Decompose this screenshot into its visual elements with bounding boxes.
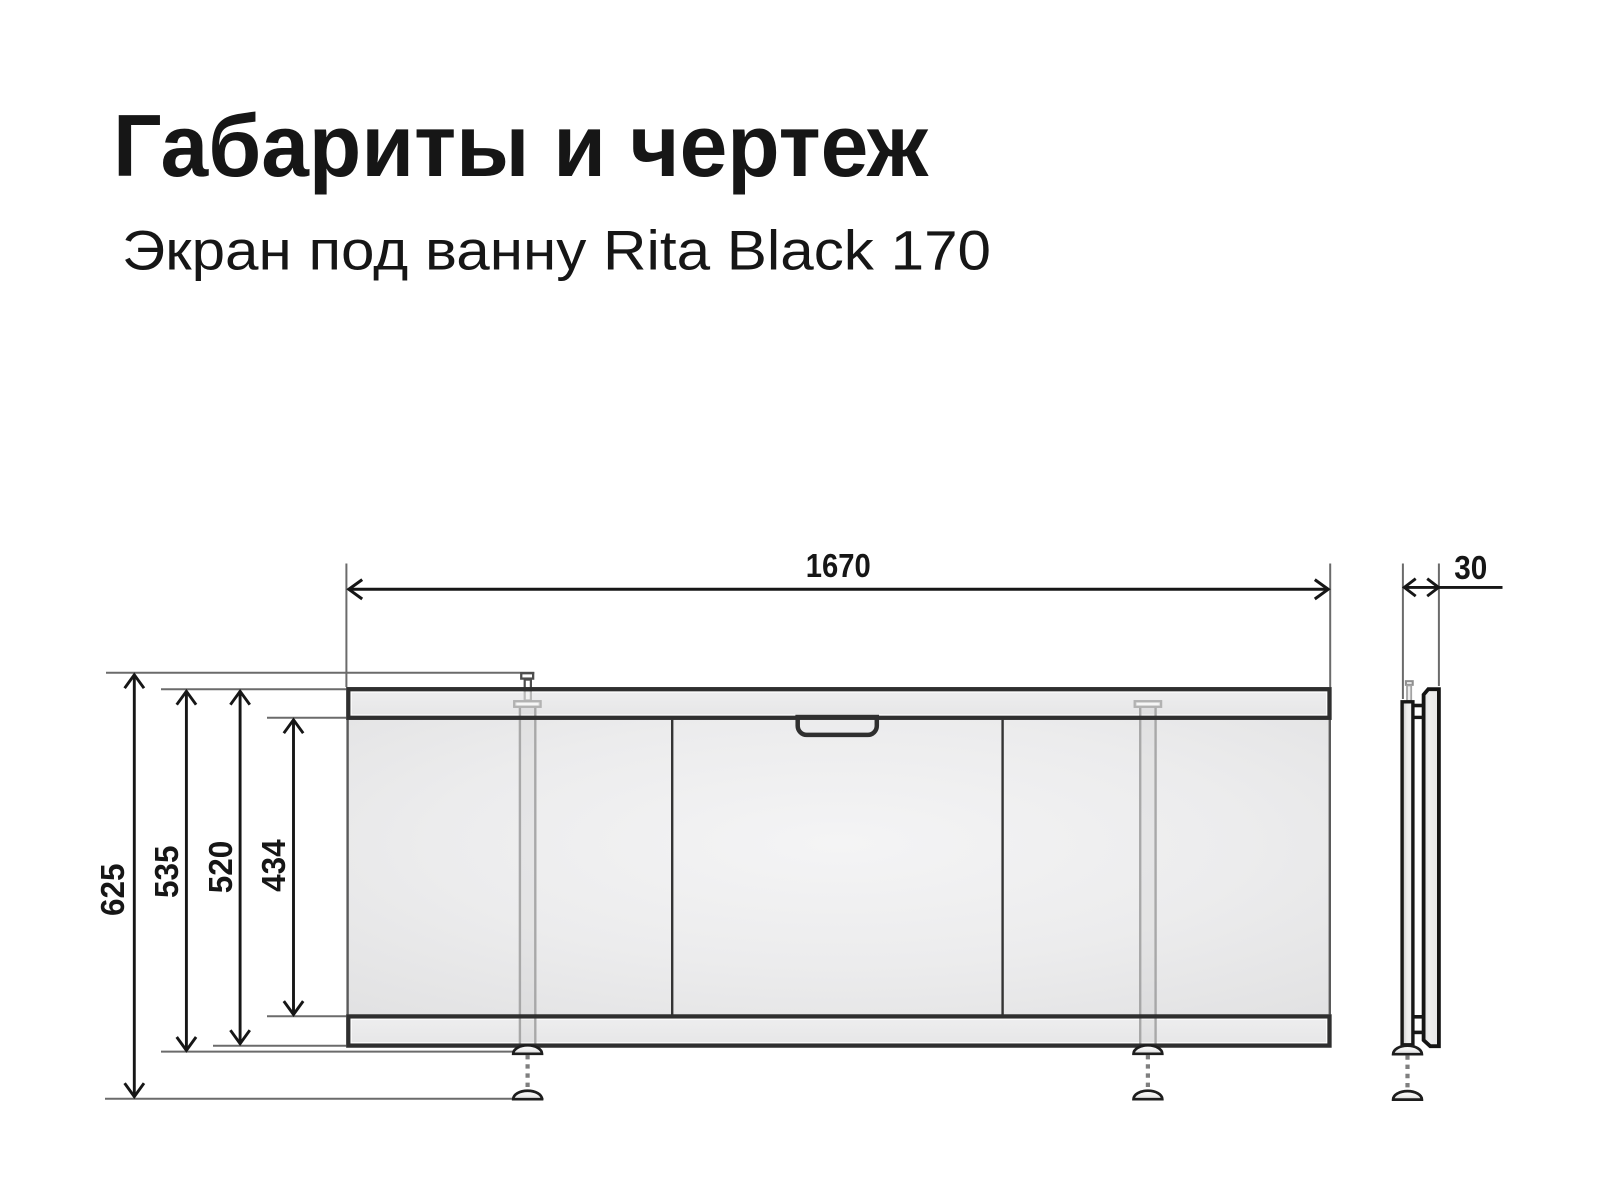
svg-text:520: 520 — [203, 841, 240, 894]
svg-text:30: 30 — [1454, 550, 1487, 587]
svg-text:625: 625 — [95, 863, 132, 916]
svg-text:1670: 1670 — [806, 548, 871, 585]
svg-text:Экран под ванну Rita Black 170: Экран под ванну Rita Black 170 — [122, 219, 991, 281]
svg-text:535: 535 — [149, 845, 186, 898]
svg-text:Габариты и чертеж: Габариты и чертеж — [113, 96, 929, 195]
svg-text:434: 434 — [256, 839, 293, 892]
